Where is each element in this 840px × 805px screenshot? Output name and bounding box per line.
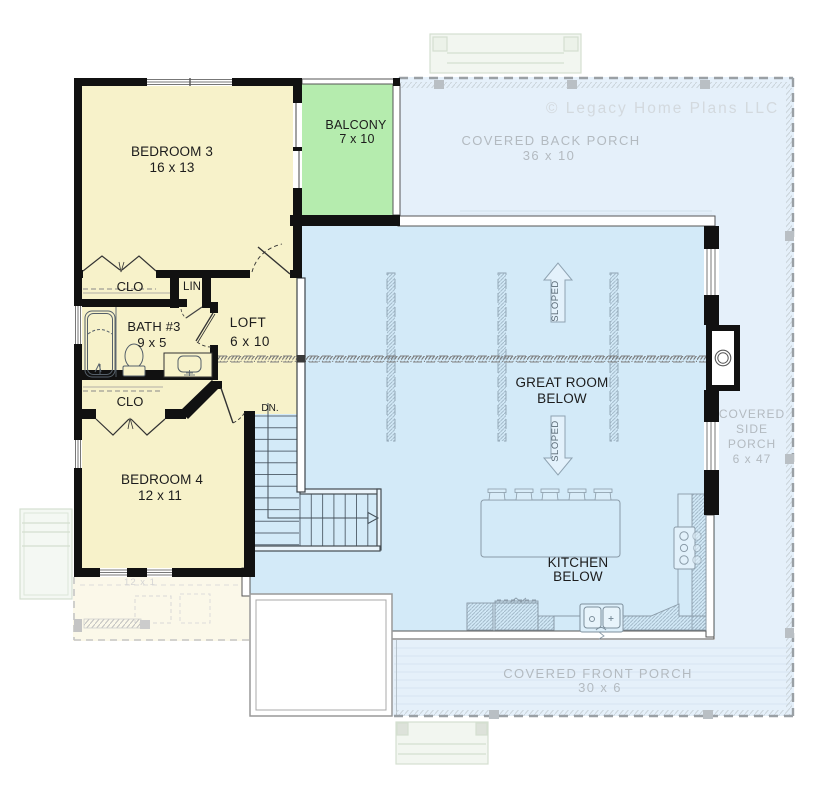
svg-text:SLOPED: SLOPED: [550, 280, 561, 322]
svg-text:6 x 10: 6 x 10: [230, 334, 270, 349]
svg-text:COVERED BACK PORCH: COVERED BACK PORCH: [461, 133, 640, 148]
svg-text:COVERED FRONT PORCH: COVERED FRONT PORCH: [503, 666, 693, 681]
svg-text:CLO: CLO: [117, 279, 144, 294]
svg-text:9 x 5: 9 x 5: [137, 335, 166, 350]
svg-text:LIN: LIN: [183, 281, 201, 293]
svg-text:DN.: DN.: [261, 403, 278, 414]
svg-text:BELOW: BELOW: [553, 569, 603, 584]
svg-text:COVERED: COVERED: [719, 407, 785, 421]
svg-text:CLO: CLO: [117, 394, 144, 409]
svg-text:PORCH: PORCH: [728, 437, 776, 451]
svg-text:16 x 13: 16 x 13: [150, 160, 195, 175]
svg-text:© Legacy Home Plans LLC: © Legacy Home Plans LLC: [546, 100, 779, 117]
svg-text:KITCHEN: KITCHEN: [548, 555, 609, 570]
svg-text:BATH #3: BATH #3: [127, 319, 180, 334]
svg-text:36 x 10: 36 x 10: [523, 148, 575, 163]
svg-text:SLOPED: SLOPED: [550, 420, 561, 462]
svg-text:GREAT ROOM: GREAT ROOM: [515, 375, 608, 390]
svg-text:7 x 10: 7 x 10: [339, 132, 374, 146]
svg-text:BEDROOM 4: BEDROOM 4: [121, 472, 203, 487]
svg-text:SIDE: SIDE: [736, 422, 768, 436]
svg-text:12 x 1: 12 x 1: [124, 577, 156, 588]
svg-text:BEDROOM 3: BEDROOM 3: [131, 144, 213, 159]
svg-text:BALCONY: BALCONY: [325, 118, 387, 132]
svg-text:LOFT: LOFT: [230, 315, 267, 330]
svg-text:6 x 47: 6 x 47: [733, 452, 772, 466]
svg-text:BELOW: BELOW: [537, 391, 587, 406]
svg-text:12 x 11: 12 x 11: [138, 488, 182, 503]
svg-text:30 x 6: 30 x 6: [578, 680, 622, 695]
